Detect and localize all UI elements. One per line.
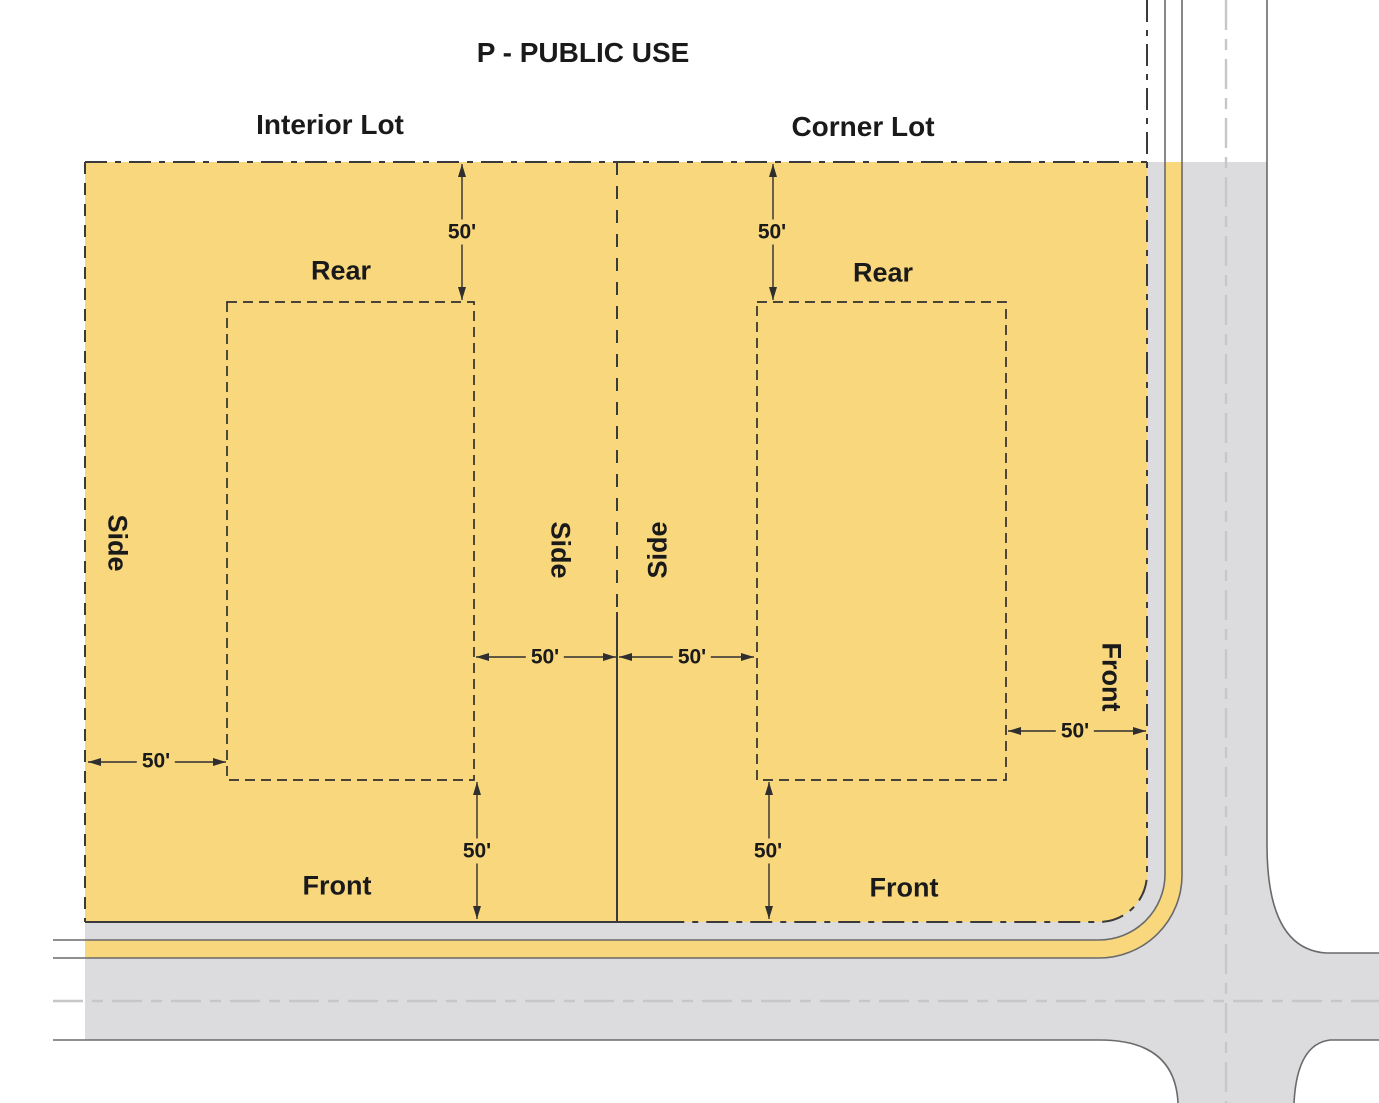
- corner-lot-title: Corner Lot: [791, 113, 934, 141]
- setback-dim-front-interior: 50': [458, 839, 496, 864]
- setback-dim-rear-corner: 50': [753, 220, 791, 245]
- setback-dim-front-street-corner: 50': [1056, 719, 1094, 744]
- setback-dim-side-corner: 50': [673, 645, 711, 670]
- interior-lot-title: Interior Lot: [256, 111, 404, 139]
- setback-dim-side-left-interior: 50': [137, 749, 175, 774]
- setback-dim-rear-interior: 50': [443, 220, 481, 245]
- front-label-interior: Front: [303, 873, 372, 900]
- road-edge-bottom: [53, 1040, 1178, 1103]
- rear-label-corner: Rear: [853, 260, 913, 287]
- zoning-setback-diagram: P - PUBLIC USE Interior Lot Corner Lot R…: [0, 0, 1379, 1103]
- site-plan-drawing: [0, 0, 1379, 1103]
- setback-dim-front-corner: 50': [749, 839, 787, 864]
- front-street-label-corner: Front: [1098, 643, 1125, 712]
- diagram-title: P - PUBLIC USE: [477, 39, 690, 67]
- setback-dim-side-inner-interior: 50': [526, 645, 564, 670]
- side-label-interior-inner: Side: [547, 521, 574, 578]
- rear-label-interior: Rear: [311, 258, 371, 285]
- side-label-corner: Side: [645, 521, 672, 578]
- side-label-interior-outer: Side: [104, 514, 131, 571]
- road-edge-right: [1267, 0, 1379, 953]
- front-label-corner: Front: [870, 875, 939, 902]
